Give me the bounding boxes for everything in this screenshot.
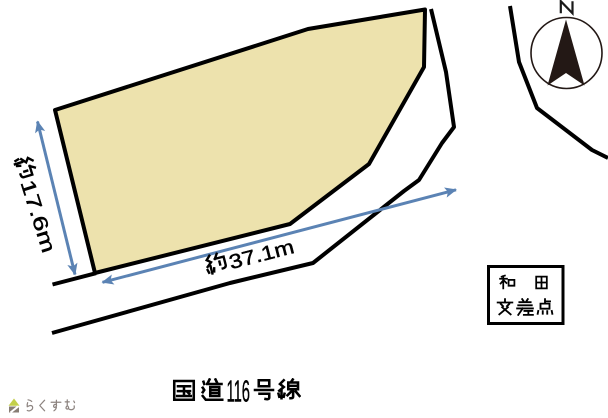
svg-text:116: 116 xyxy=(227,374,251,409)
